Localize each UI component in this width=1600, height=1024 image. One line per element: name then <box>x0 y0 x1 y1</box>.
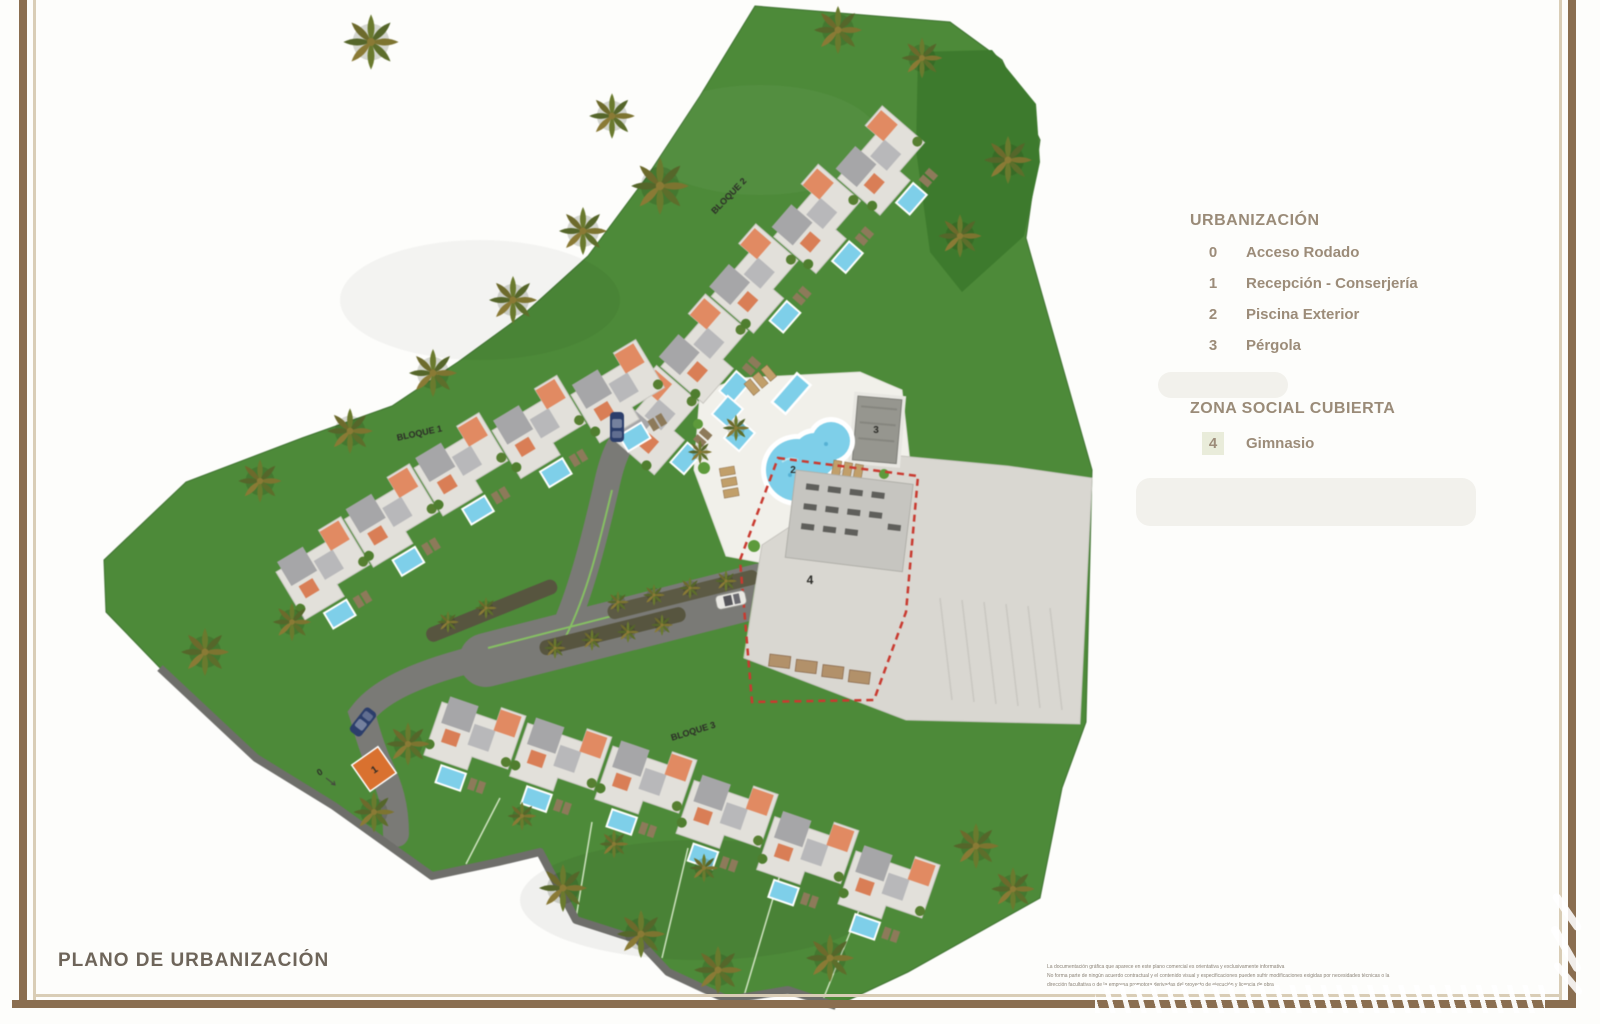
legend-item-pergola: 3 Pérgola <box>1190 337 1418 354</box>
legend-label-4: Gimnasio <box>1246 435 1314 452</box>
frame-left-inner <box>33 0 36 1000</box>
gym-building <box>785 470 913 572</box>
legend-item-gimnasio: 4 Gimnasio <box>1190 432 1418 455</box>
page-title: PLANO DE URBANIZACIÓN <box>58 950 329 972</box>
legend-item-piscina: 2 Piscina Exterior <box>1190 306 1418 323</box>
disclaimer-line-1: La documentación gráfica que aparece en … <box>1047 963 1547 972</box>
legend-label-1: Recepción - Conserjería <box>1246 275 1418 292</box>
legend-section-title-zona-social: ZONA SOCIAL CUBIERTA <box>1190 400 1418 418</box>
marker-2: 2 <box>790 465 796 476</box>
legend-num-0: 0 <box>1202 244 1224 261</box>
legend-num-4: 4 <box>1202 432 1224 455</box>
marker-4: 4 <box>807 573 814 587</box>
scan-smudge-2 <box>1136 478 1476 526</box>
legend-num-3: 3 <box>1202 337 1224 354</box>
watermark <box>1095 985 1545 1013</box>
legend-item-acceso-rodado: 0 Acceso Rodado <box>1190 244 1418 261</box>
legend-item-recepcion: 1 Recepción - Conserjería <box>1190 275 1418 292</box>
legend-label-2: Piscina Exterior <box>1246 306 1359 323</box>
disclaimer-line-2: No forma parte de ningún acuerdo contrac… <box>1047 972 1547 981</box>
legend-num-2: 2 <box>1202 306 1224 323</box>
frame-right-inner <box>1559 0 1562 1000</box>
car-blue-top <box>610 412 624 442</box>
legend-label-3: Pérgola <box>1246 337 1301 354</box>
legend-label-0: Acceso Rodado <box>1246 244 1359 261</box>
legend-num-1: 1 <box>1202 275 1224 292</box>
marker-3: 3 <box>873 425 879 436</box>
frame-right <box>1568 0 1576 1008</box>
frame-left <box>19 0 27 1008</box>
legend-section-title-urbanizacion: URBANIZACIÓN <box>1190 212 1418 230</box>
legend-panel: URBANIZACIÓN 0 Acceso Rodado 1 Recepción… <box>1190 212 1418 469</box>
